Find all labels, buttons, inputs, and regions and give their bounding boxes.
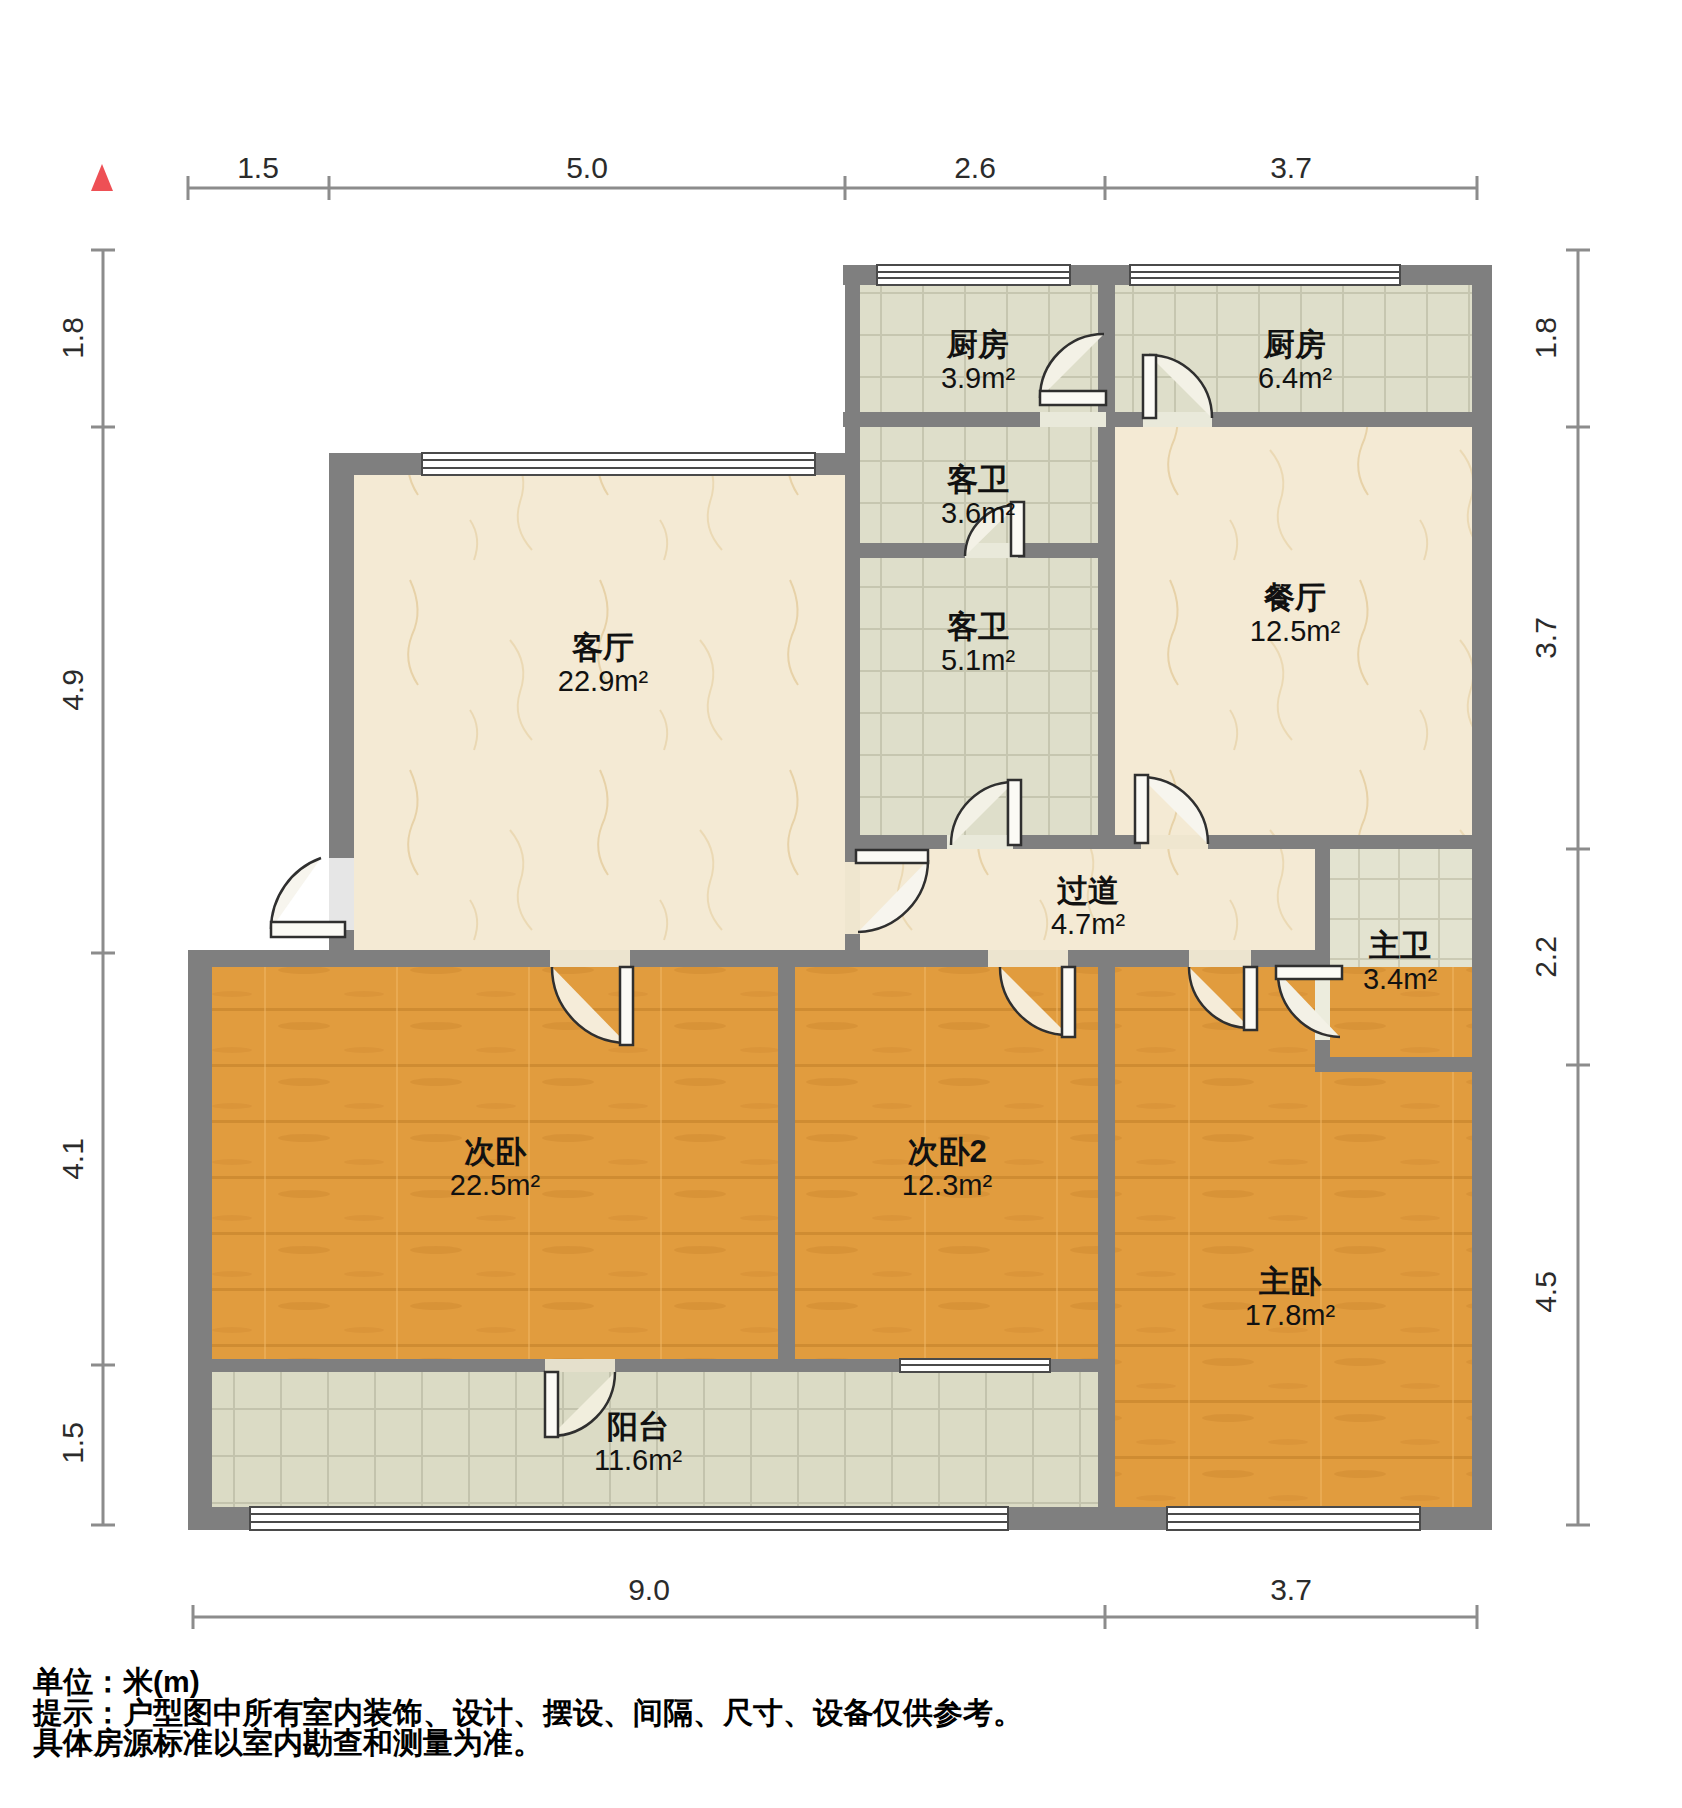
- door-opening: [1141, 835, 1208, 849]
- room-name: 主卫: [1368, 928, 1431, 963]
- room-area: 6.4m²: [1258, 362, 1332, 394]
- dim-label-top: 5.0: [566, 151, 608, 184]
- room-name: 主卧: [1258, 1264, 1322, 1299]
- room-name: 过道: [1057, 873, 1119, 908]
- room-area: 11.6m²: [594, 1444, 682, 1476]
- dim-label-right: 4.5: [1529, 1271, 1562, 1313]
- door-opening: [545, 1359, 615, 1372]
- door-leaf: [1040, 391, 1106, 405]
- door-leaf: [1244, 967, 1257, 1030]
- dim-label-left: 1.8: [56, 317, 89, 359]
- door-leaf: [1062, 967, 1075, 1037]
- dimension-line-bottom: [193, 1605, 1477, 1629]
- room-area: 12.3m²: [902, 1169, 993, 1201]
- dim-label-bottom: 3.7: [1270, 1573, 1312, 1606]
- door-opening: [988, 950, 1068, 967]
- door-leaf: [1008, 780, 1021, 845]
- room-area: 17.8m²: [1245, 1299, 1336, 1331]
- door-opening: [1040, 412, 1106, 427]
- door-leaf: [1276, 966, 1342, 979]
- window-master-bedroom: [1167, 1507, 1420, 1530]
- room-name: 厨房: [946, 327, 1009, 362]
- room-label-kitchen-2: 厨房 6.4m²: [1258, 327, 1332, 394]
- window-kitchen-2: [1130, 265, 1400, 285]
- dim-label-left: 4.9: [56, 669, 89, 711]
- dim-label-right: 3.7: [1529, 617, 1562, 659]
- wall-segment: [188, 950, 1330, 967]
- room-name: 阳台: [607, 1409, 669, 1444]
- door-opening: [1189, 950, 1251, 967]
- door-leaf: [1143, 355, 1156, 418]
- wall-segment: [188, 950, 212, 1530]
- room-name: 客卫: [946, 609, 1009, 644]
- room-floor-living-room: [354, 475, 845, 950]
- room-label-guest-bath-1: 客卫 3.6m²: [941, 462, 1015, 529]
- room-area: 3.6m²: [941, 497, 1015, 529]
- door-opening: [329, 858, 354, 930]
- room-area: 22.9m²: [558, 665, 649, 697]
- wall-segment: [1098, 954, 1115, 1507]
- window-bedroom-3: [900, 1359, 1050, 1372]
- window-kitchen-1: [877, 265, 1070, 285]
- room-name: 客厅: [571, 630, 634, 665]
- room-area: 3.9m²: [941, 362, 1015, 394]
- dim-label-top: 2.6: [954, 151, 996, 184]
- door-opening: [550, 950, 630, 967]
- room-floor-master-bedroom: [1115, 967, 1472, 1507]
- room-area: 3.4m²: [1363, 963, 1437, 995]
- dim-label-top: 1.5: [237, 151, 279, 184]
- dimension-line-right: [1566, 250, 1590, 1525]
- floorplan-svg: 1.5 5.0 2.6 3.7 1.8 4.9 4.1 1.5 1.8 3.7 …: [0, 0, 1682, 1808]
- dimension-line-left: [91, 250, 115, 1525]
- room-area: 4.7m²: [1051, 908, 1125, 940]
- door-leaf: [1135, 775, 1148, 843]
- door-leaf: [271, 922, 345, 937]
- room-area: 5.1m²: [941, 644, 1015, 676]
- room-label-hallway: 过道 4.7m²: [1051, 873, 1125, 940]
- footer-unit-note: 单位：米(m): [32, 1665, 200, 1698]
- dim-label-left: 4.1: [56, 1138, 89, 1180]
- door-leaf: [856, 850, 928, 863]
- dim-label-top: 3.7: [1270, 151, 1312, 184]
- window-living-room: [422, 453, 815, 475]
- footer-hint-line2: 具体房源标准以室内勘查和测量为准。: [33, 1726, 543, 1759]
- room-label-master-bath: 主卫 3.4m²: [1363, 928, 1437, 995]
- wall-segment: [1315, 1057, 1492, 1072]
- wall-segment: [1472, 265, 1492, 1530]
- wall-segment: [778, 967, 795, 1359]
- door-opening: [845, 862, 860, 934]
- dim-label-right: 1.8: [1529, 317, 1562, 359]
- door-swing-arc: [271, 858, 321, 929]
- room-name: 厨房: [1263, 327, 1326, 362]
- room-area: 12.5m²: [1250, 615, 1341, 647]
- door-leaf: [620, 967, 633, 1045]
- room-name: 次卧2: [907, 1134, 986, 1169]
- door-leaf: [545, 1372, 558, 1437]
- footer-hint-line1: 提示：户型图中所有室内装饰、设计、摆设、间隔、尺寸、设备仅供参考。: [32, 1696, 1023, 1729]
- dim-label-bottom: 9.0: [628, 1573, 670, 1606]
- wall-segment: [1098, 265, 1115, 849]
- room-label-guest-bath-2: 客卫 5.1m²: [941, 609, 1015, 676]
- floorplan-page: 1.5 5.0 2.6 3.7 1.8 4.9 4.1 1.5 1.8 3.7 …: [0, 0, 1682, 1808]
- room-label-kitchen-1: 厨房 3.9m²: [941, 327, 1015, 394]
- dim-label-right: 2.2: [1529, 936, 1562, 978]
- room-name: 客卫: [946, 462, 1009, 497]
- room-area: 22.5m²: [450, 1169, 541, 1201]
- dim-label-left: 1.5: [56, 1422, 89, 1464]
- room-name: 餐厅: [1263, 580, 1326, 615]
- room-name: 次卧: [464, 1134, 527, 1169]
- footer-notes: 单位：米(m) 提示：户型图中所有室内装饰、设计、摆设、间隔、尺寸、设备仅供参考…: [32, 1665, 1023, 1759]
- room-label-bedroom-3: 次卧2 12.3m²: [902, 1134, 993, 1201]
- window-balcony: [250, 1507, 1008, 1530]
- north-arrow-icon: [91, 164, 113, 191]
